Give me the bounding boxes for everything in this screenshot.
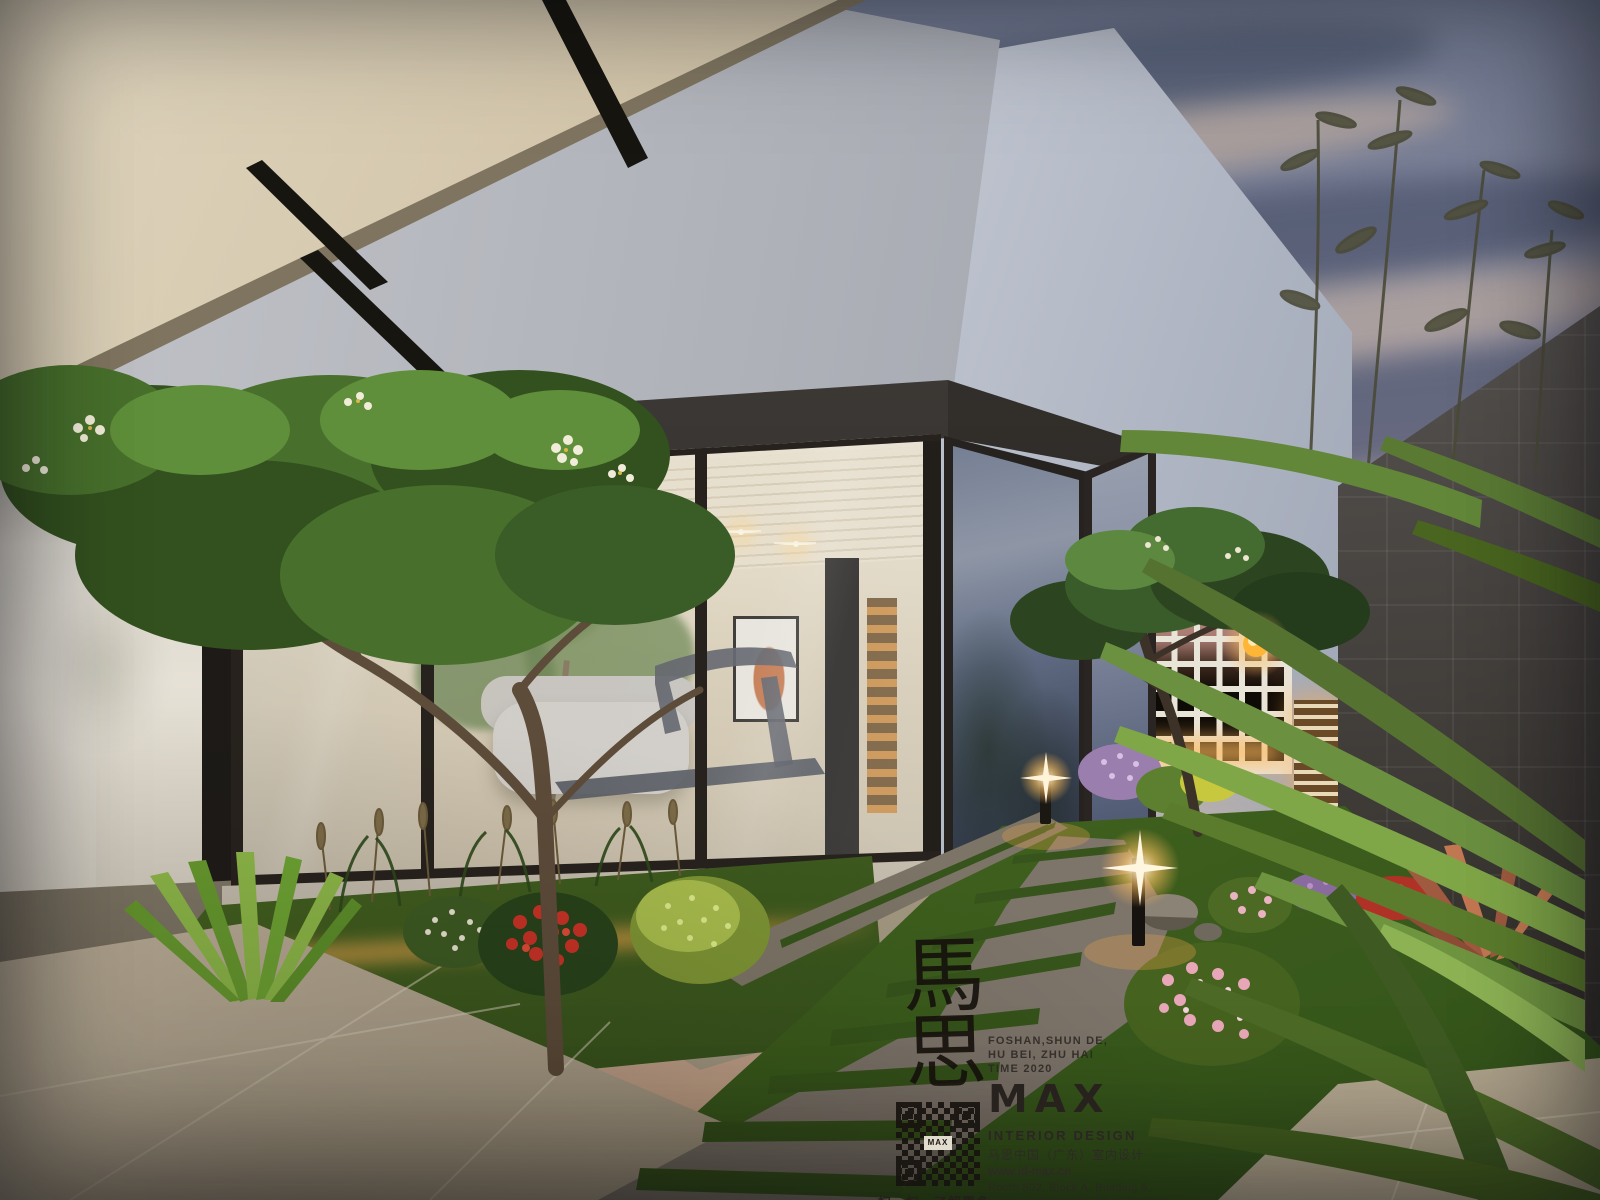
vignette (0, 0, 1600, 1200)
tagline-line: FOSHAN,SHUN DE, (988, 1034, 1198, 1048)
tagline-line: TIME 2020 (988, 1062, 1198, 1076)
calligraphy-char-si: 思 (890, 1014, 1002, 1094)
qr-center-label: MAX (924, 1136, 952, 1150)
calligraphy-logo: 馬 思 (888, 937, 1002, 1094)
qr-caption: 扫一扫，了解更多 (878, 1192, 1008, 1200)
brand-watermark: 馬 思 FOSHAN,SHUN DE, HU BEI, ZHU HAI TIME… (860, 930, 1200, 1200)
qr-finder-top-right (954, 1102, 980, 1128)
max-logo: MAX (988, 1078, 1198, 1122)
architectural-render-scene: 馬 思 FOSHAN,SHUN DE, HU BEI, ZHU HAI TIME… (0, 0, 1600, 1200)
qr-finder-top-left (896, 1102, 922, 1128)
tagline-block: FOSHAN,SHUN DE, HU BEI, ZHU HAI TIME 202… (988, 1034, 1198, 1200)
tagline-line: HU BEI, ZHU HAI (988, 1048, 1198, 1062)
qr-code: MAX (896, 1102, 980, 1186)
address-line: Room 802, Block A, Building 5, (988, 1181, 1198, 1195)
subtitle: INTERIOR DESIGN (988, 1128, 1198, 1143)
cn-subtitle: 马思中国（广东）室内设计 (988, 1146, 1198, 1163)
qr-finder-bottom-left (896, 1160, 922, 1186)
address-line: Tianan Cyber Park, No.1 Jianping (988, 1195, 1198, 1200)
website: www.id-max.cn (988, 1166, 1198, 1178)
